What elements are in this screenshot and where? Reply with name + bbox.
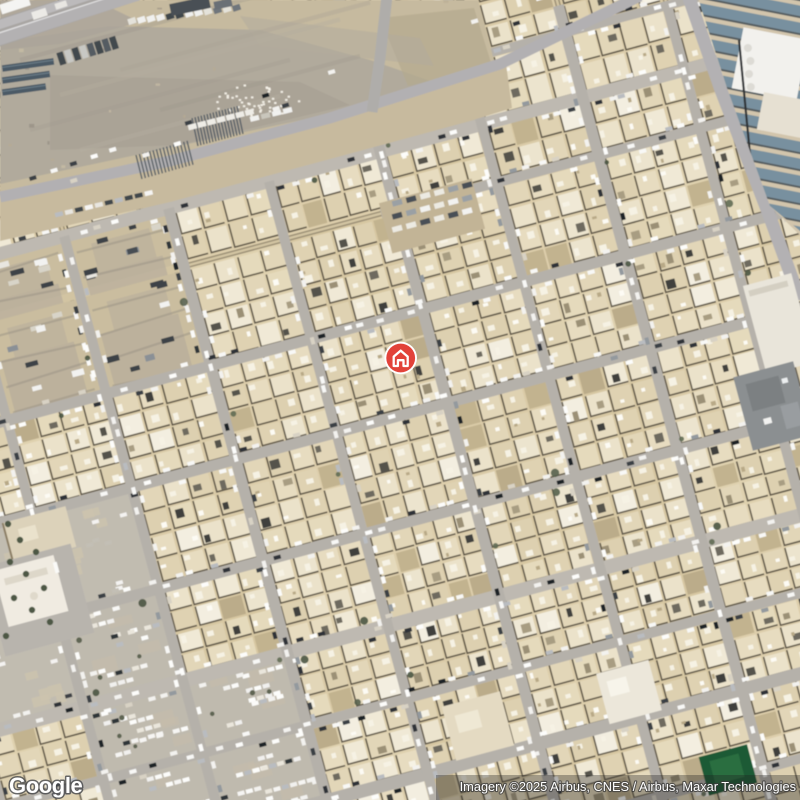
svg-text:Imagery ©2025 Airbus, CNES / A: Imagery ©2025 Airbus, CNES / Airbus, Max… bbox=[460, 779, 796, 794]
svg-text:Google: Google bbox=[9, 773, 83, 798]
